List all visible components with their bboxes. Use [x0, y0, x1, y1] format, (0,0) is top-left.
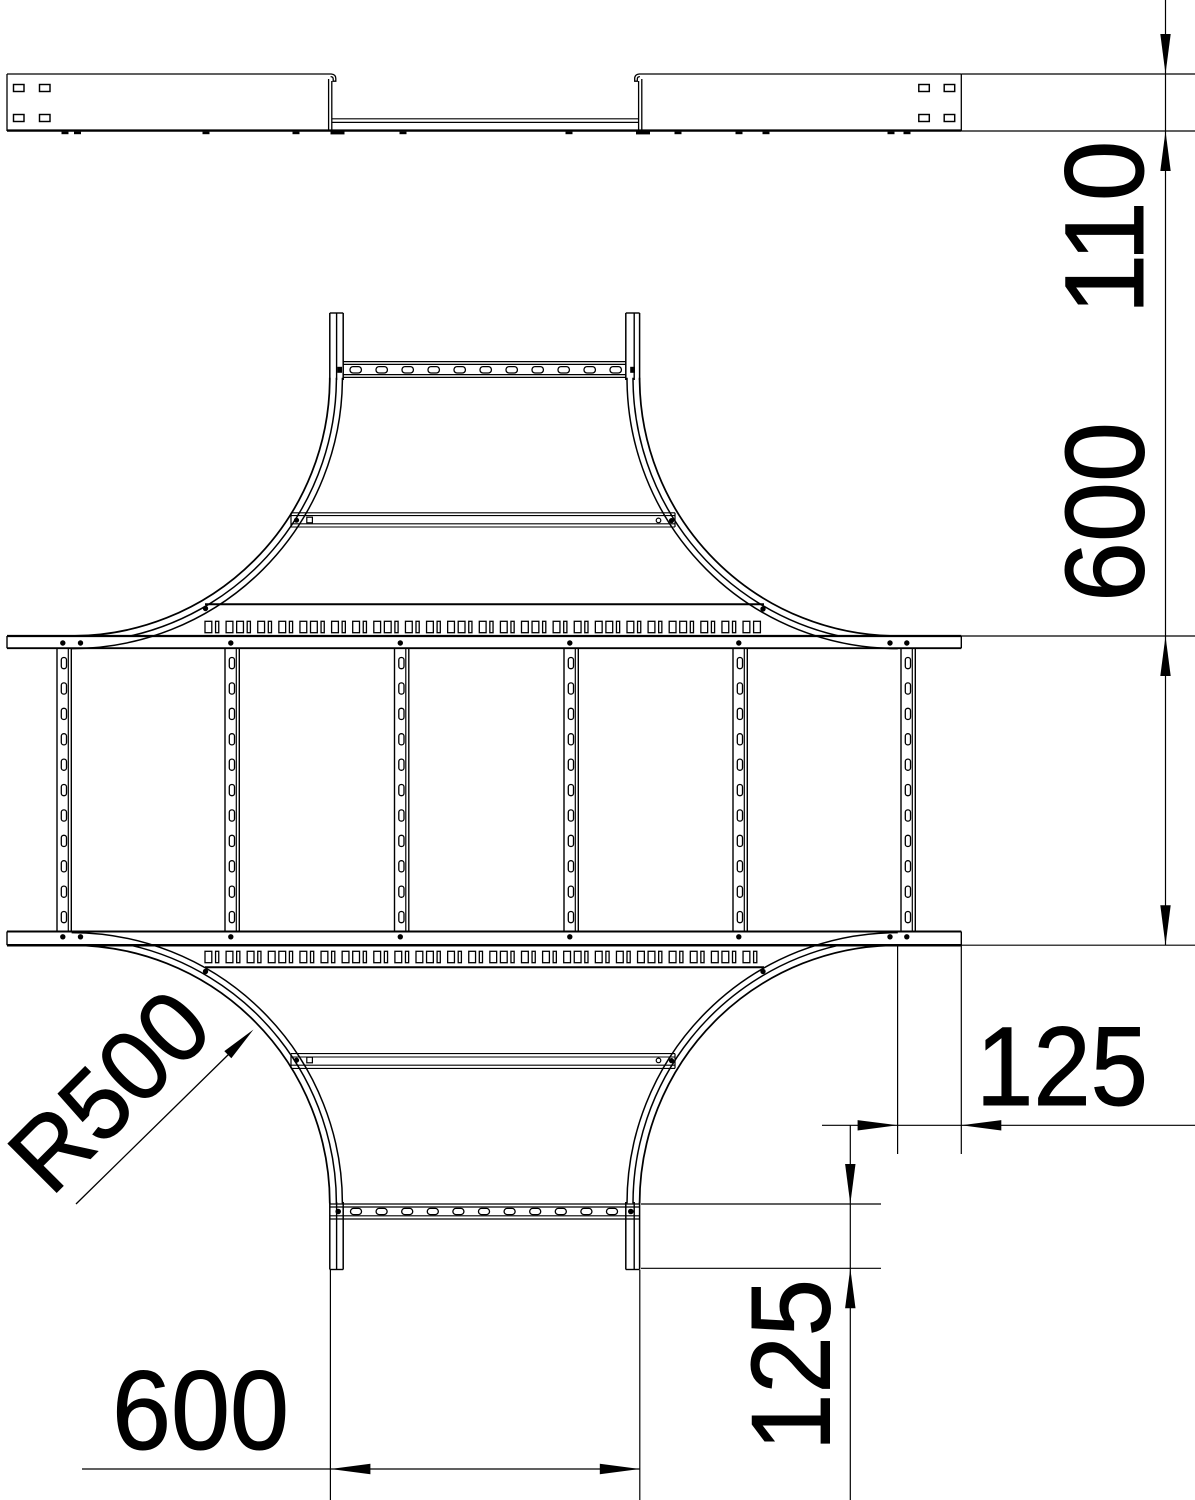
svg-text:125: 125 — [729, 1279, 854, 1451]
svg-text:600: 600 — [112, 1348, 289, 1473]
svg-text:125: 125 — [976, 1004, 1148, 1129]
svg-text:600: 600 — [1043, 422, 1168, 602]
svg-text:110: 110 — [1042, 141, 1167, 315]
